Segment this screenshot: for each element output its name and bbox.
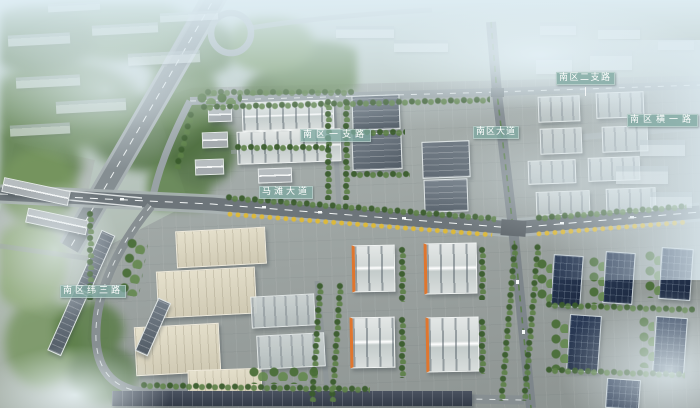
orange-accent-factory xyxy=(424,243,478,295)
road-label-south-avenue: 南区大道 xyxy=(473,126,519,139)
tree-cluster xyxy=(638,316,654,368)
north-crossing xyxy=(491,88,504,97)
tree-column xyxy=(398,246,407,302)
distant-building xyxy=(640,140,685,156)
dark-roof-factory xyxy=(421,140,470,179)
orange-accent-factory xyxy=(350,317,396,369)
tree-cluster xyxy=(588,256,604,304)
bottom-edge-buildings xyxy=(112,391,472,406)
road-label-south-horizontal-1: 南区横一路 xyxy=(627,114,698,127)
label-leader-line xyxy=(585,87,586,96)
aerial-rendering: 南区二支路 南区横一路 南区一支路 南区大道 马滩大道 南区纬三路 xyxy=(0,0,700,408)
tree-column xyxy=(342,98,351,200)
distant-building xyxy=(598,26,640,39)
tree-cluster xyxy=(248,366,318,384)
distant-building xyxy=(536,54,572,74)
main-intersection xyxy=(500,219,526,237)
tree-cluster xyxy=(550,318,568,370)
shed-building xyxy=(202,132,229,149)
distant-building xyxy=(394,40,448,52)
navy-roof-building xyxy=(566,314,602,373)
road-label-south-wei-3: 南区纬三路 xyxy=(60,285,126,298)
tree-cluster xyxy=(536,258,552,304)
factory-building xyxy=(540,127,583,154)
distant-building xyxy=(658,38,694,50)
navy-roof-building xyxy=(652,316,688,375)
factory-building xyxy=(250,293,316,328)
shed-building xyxy=(258,167,293,183)
shed-building xyxy=(195,158,225,175)
tree-cluster xyxy=(644,250,660,298)
distant-building xyxy=(616,166,668,184)
factory-building xyxy=(528,159,577,185)
navy-roof-building xyxy=(602,251,636,305)
navy-roof-building xyxy=(605,378,641,408)
orange-accent-factory xyxy=(426,317,480,373)
distant-building xyxy=(540,22,576,35)
distant-building xyxy=(336,26,394,38)
orange-accent-factory xyxy=(352,245,396,293)
navy-roof-building xyxy=(658,247,694,301)
road-label-south-branch-2: 南区二支路 xyxy=(556,72,615,85)
distant-building xyxy=(590,50,632,70)
warehouse-building xyxy=(156,266,257,318)
tree-row xyxy=(234,143,329,152)
tree-column xyxy=(478,246,487,300)
tree-column xyxy=(478,318,487,374)
tree-cluster xyxy=(196,92,242,104)
dark-roof-factory xyxy=(423,178,468,213)
warehouse-building xyxy=(175,227,267,269)
road-label-matan-avenue: 马滩大道 xyxy=(259,186,313,199)
road-label-south-branch-1: 南区一支路 xyxy=(300,129,371,142)
factory-building xyxy=(538,95,581,122)
tree-column xyxy=(398,316,407,378)
tree-row xyxy=(350,170,410,179)
